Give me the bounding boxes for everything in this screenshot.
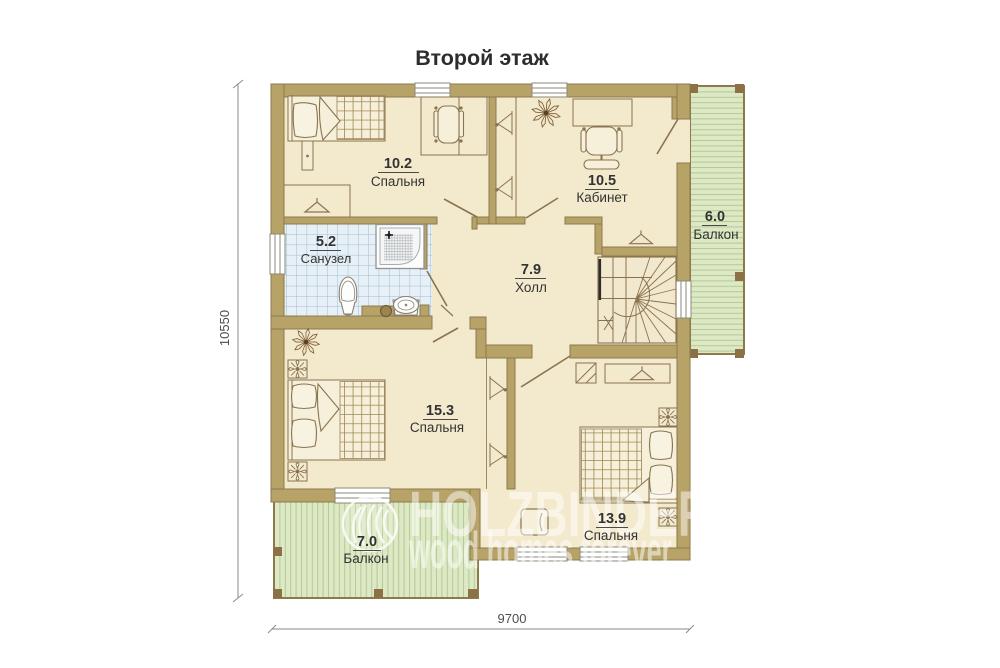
svg-text:13.9: 13.9	[598, 511, 626, 527]
svg-text:Спальня: Спальня	[584, 528, 638, 543]
svg-text:Балкон: Балкон	[693, 227, 738, 242]
svg-text:7.9: 7.9	[521, 262, 541, 278]
svg-text:Холл: Холл	[515, 280, 547, 295]
svg-text:Балкон: Балкон	[343, 551, 388, 566]
svg-text:9700: 9700	[498, 611, 527, 626]
svg-text:10.2: 10.2	[384, 156, 412, 172]
svg-text:7.0: 7.0	[357, 534, 377, 550]
svg-text:6.0: 6.0	[705, 209, 725, 225]
svg-text:10.5: 10.5	[588, 173, 616, 189]
svg-text:15.3: 15.3	[426, 403, 454, 419]
svg-text:Кабинет: Кабинет	[576, 190, 627, 205]
svg-text:Спальня: Спальня	[371, 174, 425, 189]
svg-text:Второй этаж: Второй этаж	[415, 46, 549, 70]
svg-text:5.2: 5.2	[316, 234, 336, 250]
svg-text:Спальня: Спальня	[410, 420, 464, 435]
svg-text:Санузел: Санузел	[301, 251, 352, 266]
svg-text:10550: 10550	[217, 310, 232, 346]
